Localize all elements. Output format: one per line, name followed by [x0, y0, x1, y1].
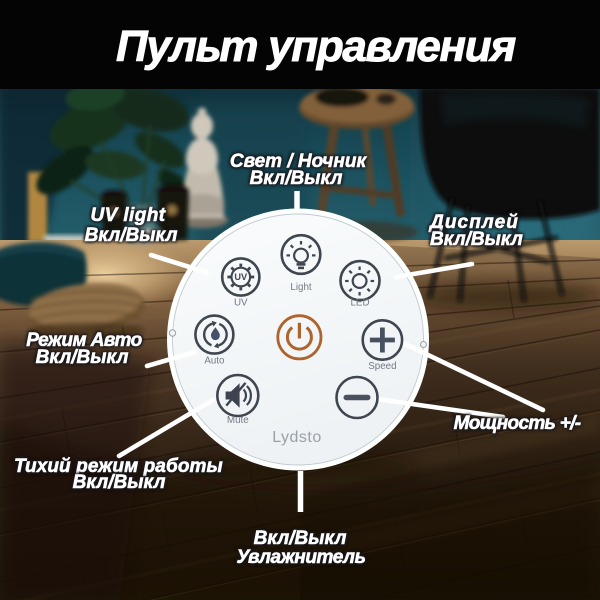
- svg-text:UV: UV: [234, 298, 248, 309]
- svg-text:Speed: Speed: [368, 361, 396, 372]
- svg-text:Light: Light: [290, 282, 312, 293]
- svg-text:Lydsto: Lydsto: [272, 429, 322, 446]
- svg-text:Auto: Auto: [204, 356, 225, 367]
- svg-text:UV: UV: [234, 272, 248, 282]
- svg-text:Mute: Mute: [227, 415, 249, 426]
- svg-text:LED: LED: [350, 298, 369, 309]
